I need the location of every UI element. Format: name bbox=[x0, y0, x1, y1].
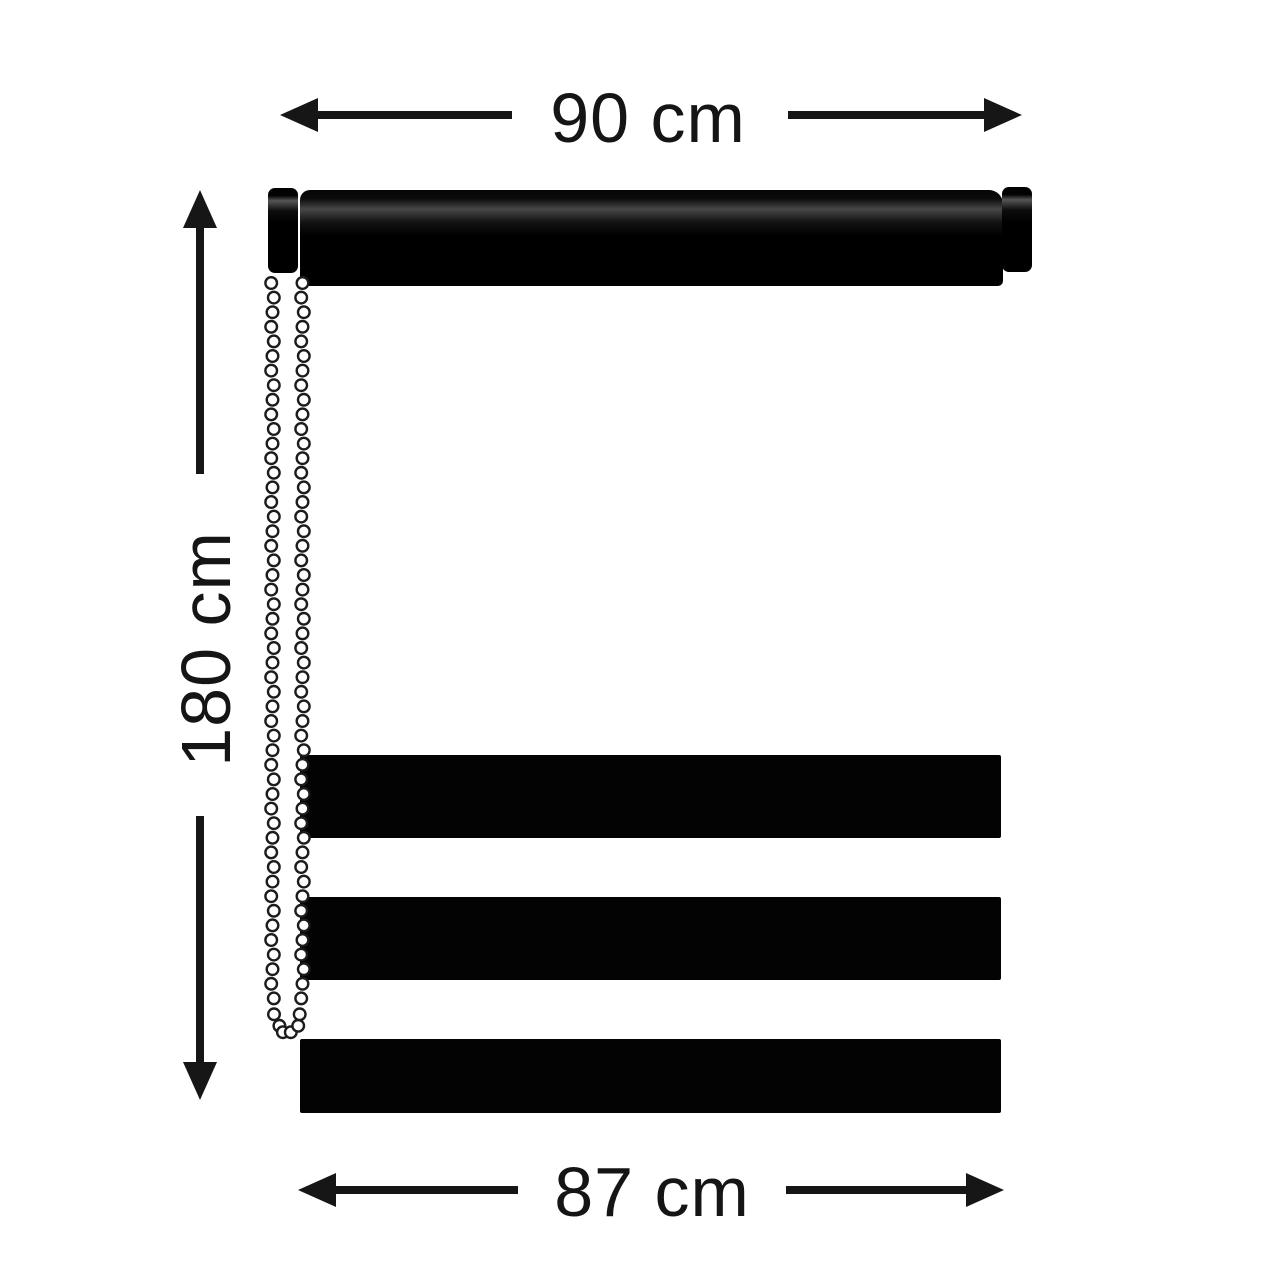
left-dimension-label: 180 cm bbox=[171, 531, 241, 767]
right-bracket bbox=[1002, 187, 1032, 272]
fabric-stripe-1 bbox=[300, 755, 1001, 838]
roller-tube bbox=[300, 190, 1003, 286]
fabric-width-arrow-right-icon bbox=[786, 1172, 1004, 1208]
width-arrow-right-icon bbox=[788, 97, 1022, 133]
top-dimension-label: 90 cm bbox=[550, 83, 746, 153]
width-arrow-left-icon bbox=[280, 97, 512, 133]
fabric-stripe-3 bbox=[300, 1039, 1001, 1113]
fabric-width-arrow-left-icon bbox=[298, 1172, 518, 1208]
left-bracket bbox=[268, 188, 298, 273]
height-arrow-up-icon bbox=[182, 190, 218, 474]
fabric-stripe-2 bbox=[300, 897, 1001, 980]
bottom-dimension-label: 87 cm bbox=[554, 1157, 750, 1227]
height-arrow-down-icon bbox=[182, 816, 218, 1100]
product-diagram: 90 cm 180 cm bbox=[0, 0, 1280, 1280]
